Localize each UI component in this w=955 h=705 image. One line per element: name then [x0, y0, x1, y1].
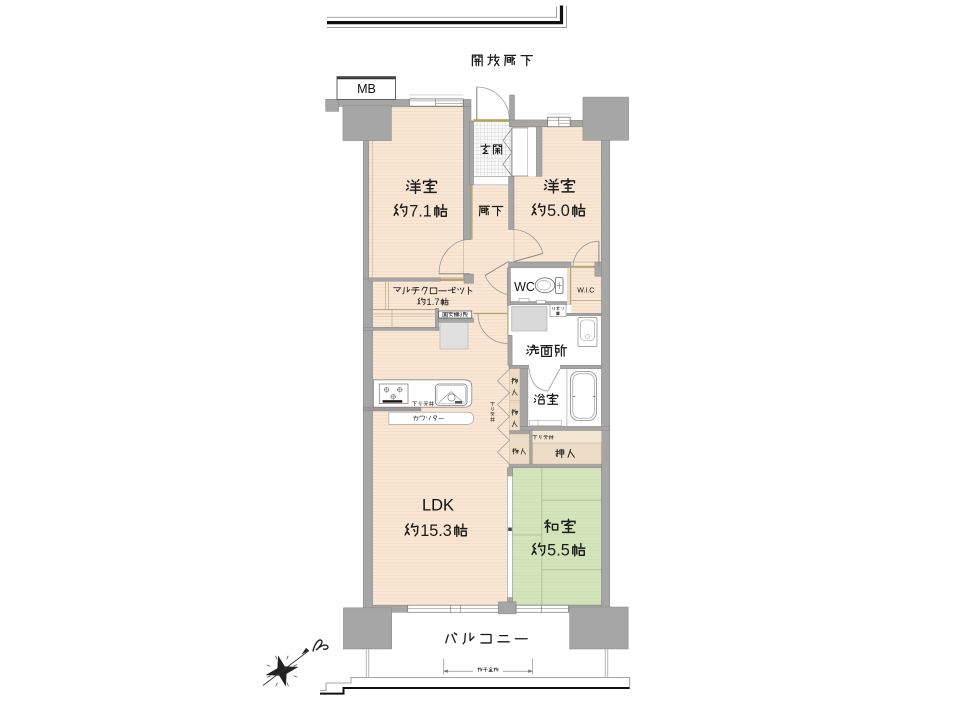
svg-text:5.0: 5.0	[547, 202, 570, 220]
svg-text:WC: WC	[514, 280, 535, 294]
svg-text:5.5: 5.5	[547, 542, 570, 560]
svg-text:LDK: LDK	[422, 497, 454, 515]
svg-text:3: 3	[459, 313, 462, 319]
svg-text:MB: MB	[357, 82, 376, 96]
svg-text:1.7: 1.7	[426, 297, 439, 308]
svg-text:W.I.C: W.I.C	[577, 288, 594, 295]
svg-text:15.3: 15.3	[420, 522, 452, 540]
svg-text:7.1: 7.1	[409, 203, 432, 221]
